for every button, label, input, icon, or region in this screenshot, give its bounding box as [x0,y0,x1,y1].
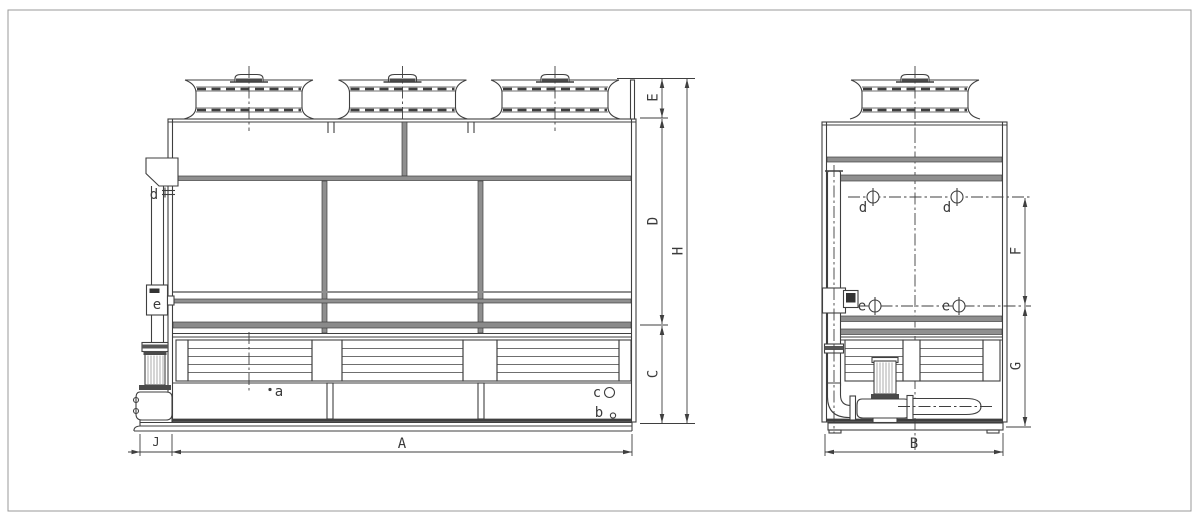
sheet-border [8,10,1191,511]
side-fan-cowl [850,66,980,131]
valve-slot [150,289,160,294]
port-dot-a [268,388,271,391]
front-basin: a c b [173,383,631,421]
dim-label-A: A [398,436,407,452]
suction-elbow [828,383,852,418]
side-base [828,423,1003,433]
front-spray-header: d [146,158,178,203]
port-label-e-right: e [942,299,950,315]
side-rails [827,157,1002,340]
dim-label-F: F [1009,247,1025,255]
louver-panel [497,340,619,381]
dim-label-E: E [646,93,662,101]
front-base [134,406,632,432]
pump-motor [874,361,896,394]
port-label-d-left: d [859,200,867,216]
port-label-a: a [275,384,283,400]
valve-stub [168,296,175,305]
port-label-b: b [595,405,603,421]
port-label-e-left: e [858,299,866,315]
port-label-e: e [153,297,161,313]
front-rails [173,176,631,337]
fan-cowl-2 [338,66,468,131]
louver-panel [342,340,463,381]
dim-label-D: D [646,217,662,225]
dim-label-C: C [646,370,662,378]
side-dimensions-horizontal: B [825,433,1003,456]
side-pump [850,358,992,423]
dim-label-H: H [671,247,687,255]
front-riser-duct [152,186,164,343]
cooling-tower-dimensional-drawing: a c b d e [0,0,1200,520]
fan-deck-end-wall [631,80,635,119]
front-valve-box: e [147,285,175,315]
louver-panel [920,340,983,381]
dim-label-J: J [152,435,159,449]
dim-label-G: G [1009,362,1025,370]
fan-cowl-3 [490,66,620,131]
port-label-d-right: d [943,200,951,216]
technical-drawing-canvas: a c b d e [0,0,1200,520]
front-dimensions-horizontal: J A [128,434,632,456]
front-view: a c b d e [128,66,695,456]
port-label-c: c [593,385,601,401]
dim-label-B: B [910,436,918,452]
pump-volute [136,392,172,420]
louver-panel [188,340,312,381]
side-dimensions-vertical: F G [1006,198,1031,427]
pump-volute [857,399,910,418]
port-circle-b [610,413,615,418]
port-circle-c [605,388,615,398]
side-view: d d e e F G [822,66,1031,456]
front-pump [134,343,173,421]
fan-cowl-1 [184,66,314,131]
